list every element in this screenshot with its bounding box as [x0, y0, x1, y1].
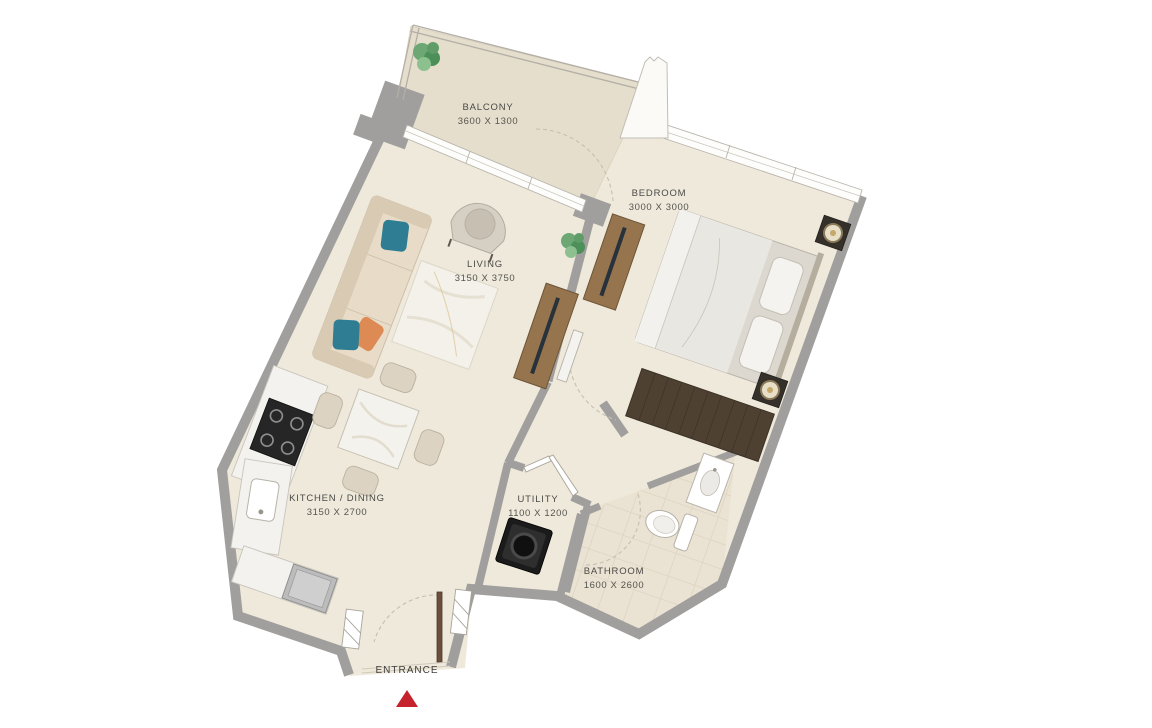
svg-text:UTILITY: UTILITY	[518, 494, 559, 505]
kitchen-sink	[246, 478, 280, 522]
svg-text:3150 X 2700: 3150 X 2700	[307, 507, 367, 518]
svg-text:BEDROOM: BEDROOM	[632, 188, 687, 199]
floor-plan-canvas: BALCONY 3600 X 1300 BEDROOM 3000 X 3000 …	[0, 0, 1152, 728]
svg-text:1100 X 1200: 1100 X 1200	[508, 508, 568, 519]
floor-plan-page: BALCONY 3600 X 1300 BEDROOM 3000 X 3000 …	[0, 0, 1152, 728]
svg-text:BATHROOM: BATHROOM	[584, 566, 645, 577]
svg-text:1600 X 2600: 1600 X 2600	[584, 580, 644, 591]
svg-text:BALCONY: BALCONY	[462, 102, 513, 113]
svg-text:3600 X 1300: 3600 X 1300	[458, 116, 518, 127]
entrance-marker	[396, 690, 418, 707]
svg-text:3000 X 3000: 3000 X 3000	[629, 202, 689, 213]
pillow-teal-2	[332, 319, 360, 350]
svg-text:KITCHEN / DINING: KITCHEN / DINING	[289, 493, 385, 504]
entrance-door-leaf	[437, 592, 442, 662]
pillow-teal	[380, 219, 409, 252]
svg-text:3150 X 3750: 3150 X 3750	[455, 273, 515, 284]
svg-text:LIVING: LIVING	[467, 259, 503, 270]
entrance-label: ENTRANCE	[375, 665, 438, 676]
